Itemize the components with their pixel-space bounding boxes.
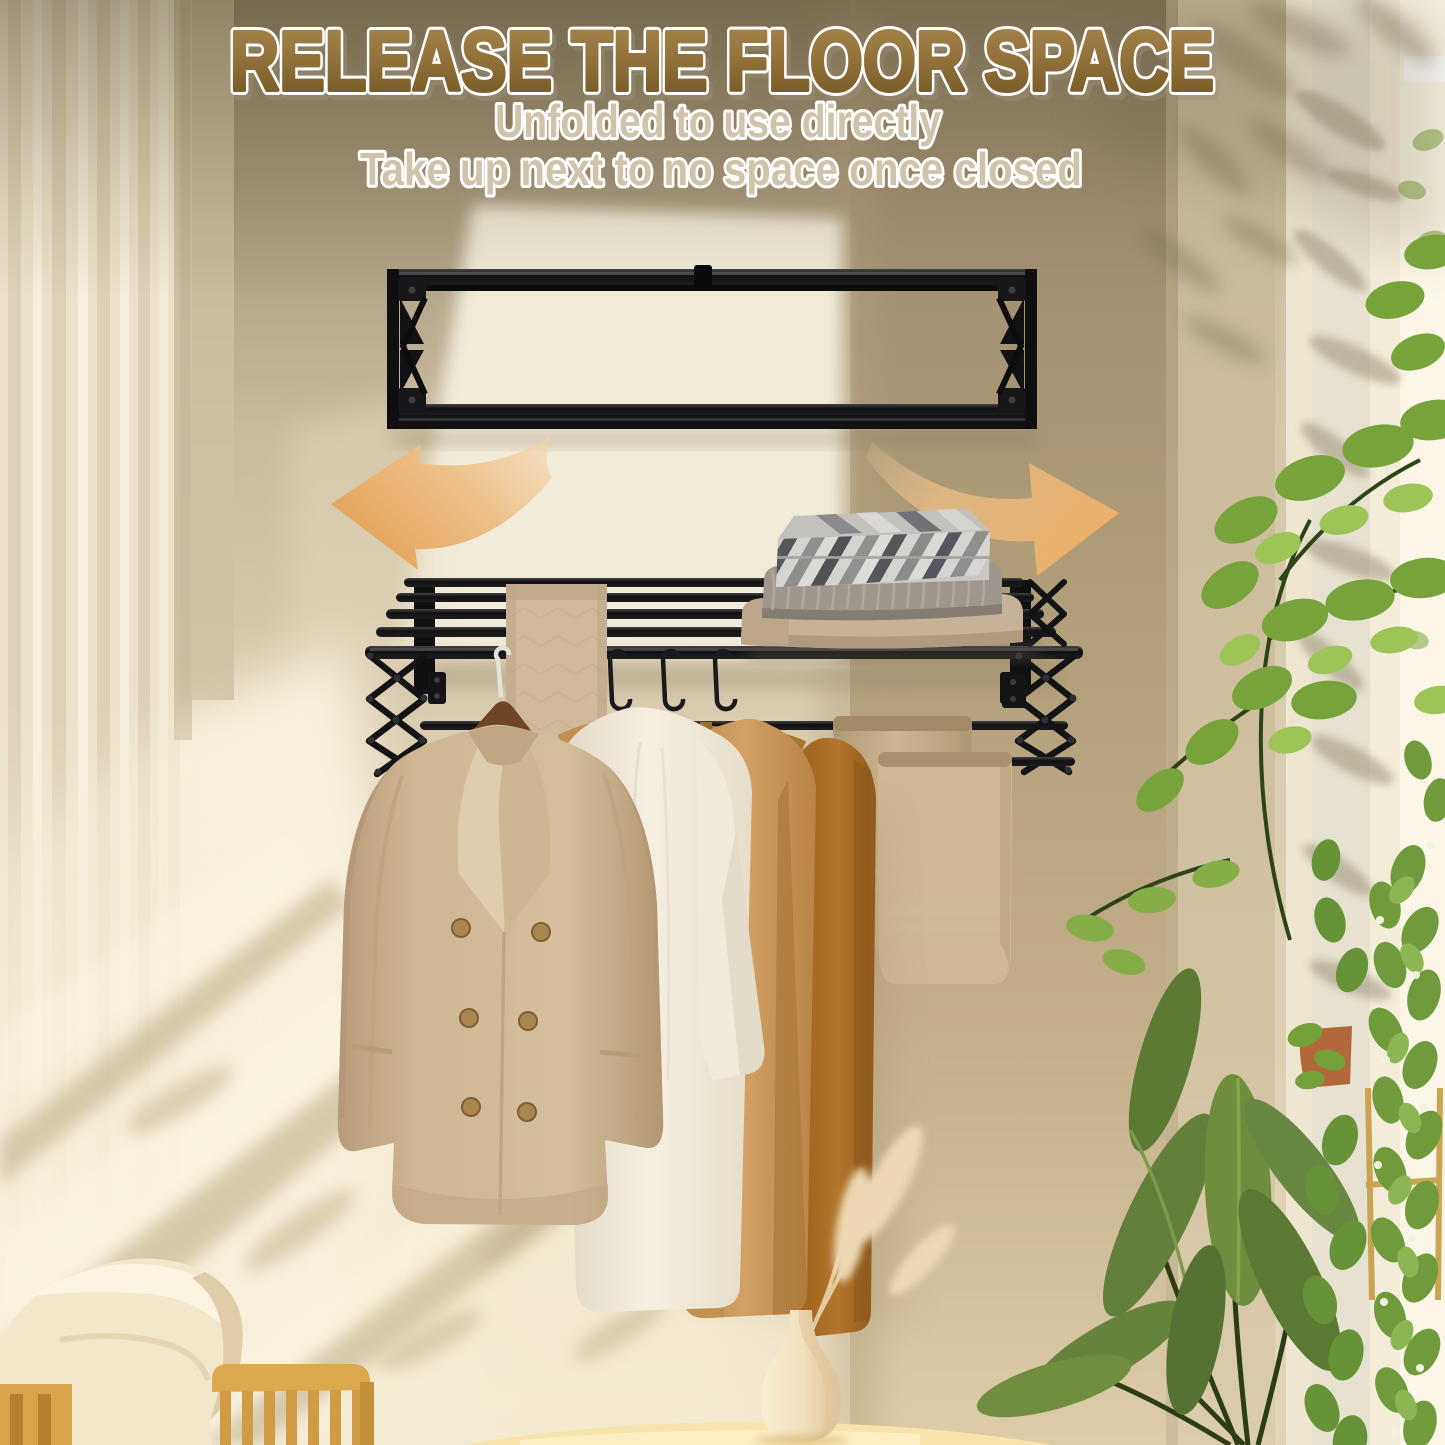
svg-text:RELEASE THE FLOOR SPACE: RELEASE THE FLOOR SPACE — [230, 14, 1214, 108]
svg-text:Take up next to no space once: Take up next to no space once closed — [360, 143, 1082, 195]
svg-text:Unfolded to use directly: Unfolded to use directly — [495, 95, 941, 147]
